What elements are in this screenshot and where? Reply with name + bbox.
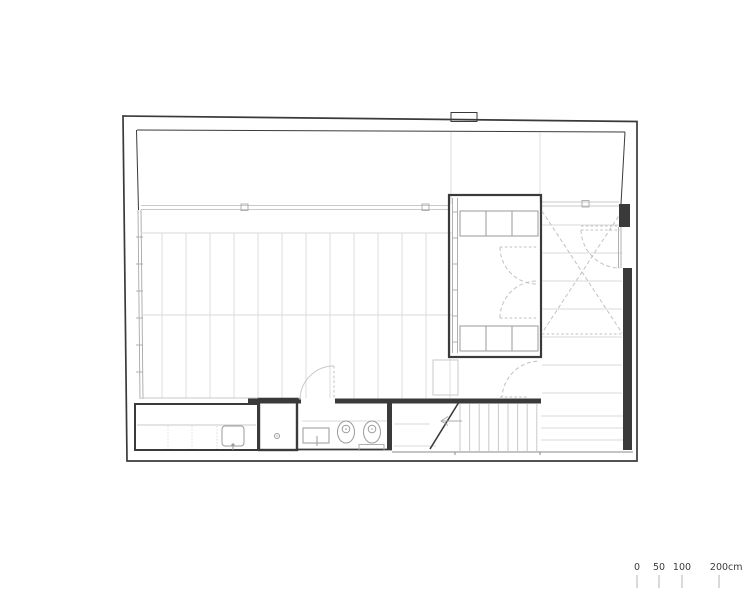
stair-landing-lines [541, 416, 623, 440]
scale-label-100: 100 [673, 562, 691, 573]
bidet [364, 421, 381, 443]
shower-room [259, 399, 297, 450]
left-inner-wall-upper [137, 130, 139, 210]
floor-plan-drawing: 0 50 100 200 cm [0, 0, 752, 600]
bathroom-door-swing [300, 366, 334, 400]
bedroom-box [449, 195, 541, 357]
loft-ladder [453, 198, 458, 353]
right-inner-wall-upper [621, 132, 625, 204]
scale-label-200: 200 [710, 562, 728, 573]
void-area [542, 211, 622, 393]
scale-label-50: 50 [653, 562, 665, 573]
outer-walls [123, 113, 637, 462]
vanity-sink [303, 428, 329, 446]
terrace-door-swing [581, 226, 620, 268]
glazing-track [141, 201, 619, 211]
window-right [619, 227, 622, 268]
low-cabinet [433, 360, 458, 395]
scale-ticks [637, 575, 719, 588]
scale-bar: 0 50 100 200 cm [634, 562, 743, 588]
bathroom-east-wall [387, 403, 392, 450]
ladder-rungs [453, 212, 458, 342]
main-room [141, 233, 452, 398]
right-wall-lower [623, 268, 632, 450]
right-wall [619, 204, 633, 450]
staircase [392, 402, 633, 455]
bathroom [297, 403, 392, 451]
toilet [338, 421, 355, 443]
scale-label-0: 0 [634, 562, 640, 573]
kitchen-sink [222, 426, 244, 450]
wardrobe-bottom [460, 326, 538, 351]
floor-plan-page: 0 50 100 200 cm [0, 0, 752, 600]
counter-outline [135, 404, 258, 450]
south-partition-wall [248, 361, 541, 404]
corridor-door-swing [500, 361, 540, 399]
stair-break-line [430, 402, 459, 449]
roof-inner-edge-top [137, 130, 625, 132]
drain-dot [276, 435, 277, 436]
scale-unit: cm [728, 562, 742, 573]
void-batten-lines [542, 225, 622, 393]
wardrobe-top [460, 211, 538, 236]
stair-direction-arrow [441, 417, 462, 426]
stair-treads [460, 404, 537, 451]
double-door-swing [500, 247, 537, 318]
left-glazed-wall [136, 210, 143, 399]
outer-boundary [123, 116, 637, 461]
kitchen-counter [135, 404, 258, 450]
floorboard-lines [162, 233, 450, 398]
wall-segment [335, 399, 541, 404]
bedroom-box-walls [449, 195, 541, 357]
shower-walls [259, 399, 297, 450]
wall-pier [619, 204, 630, 227]
roof-band [451, 132, 540, 204]
